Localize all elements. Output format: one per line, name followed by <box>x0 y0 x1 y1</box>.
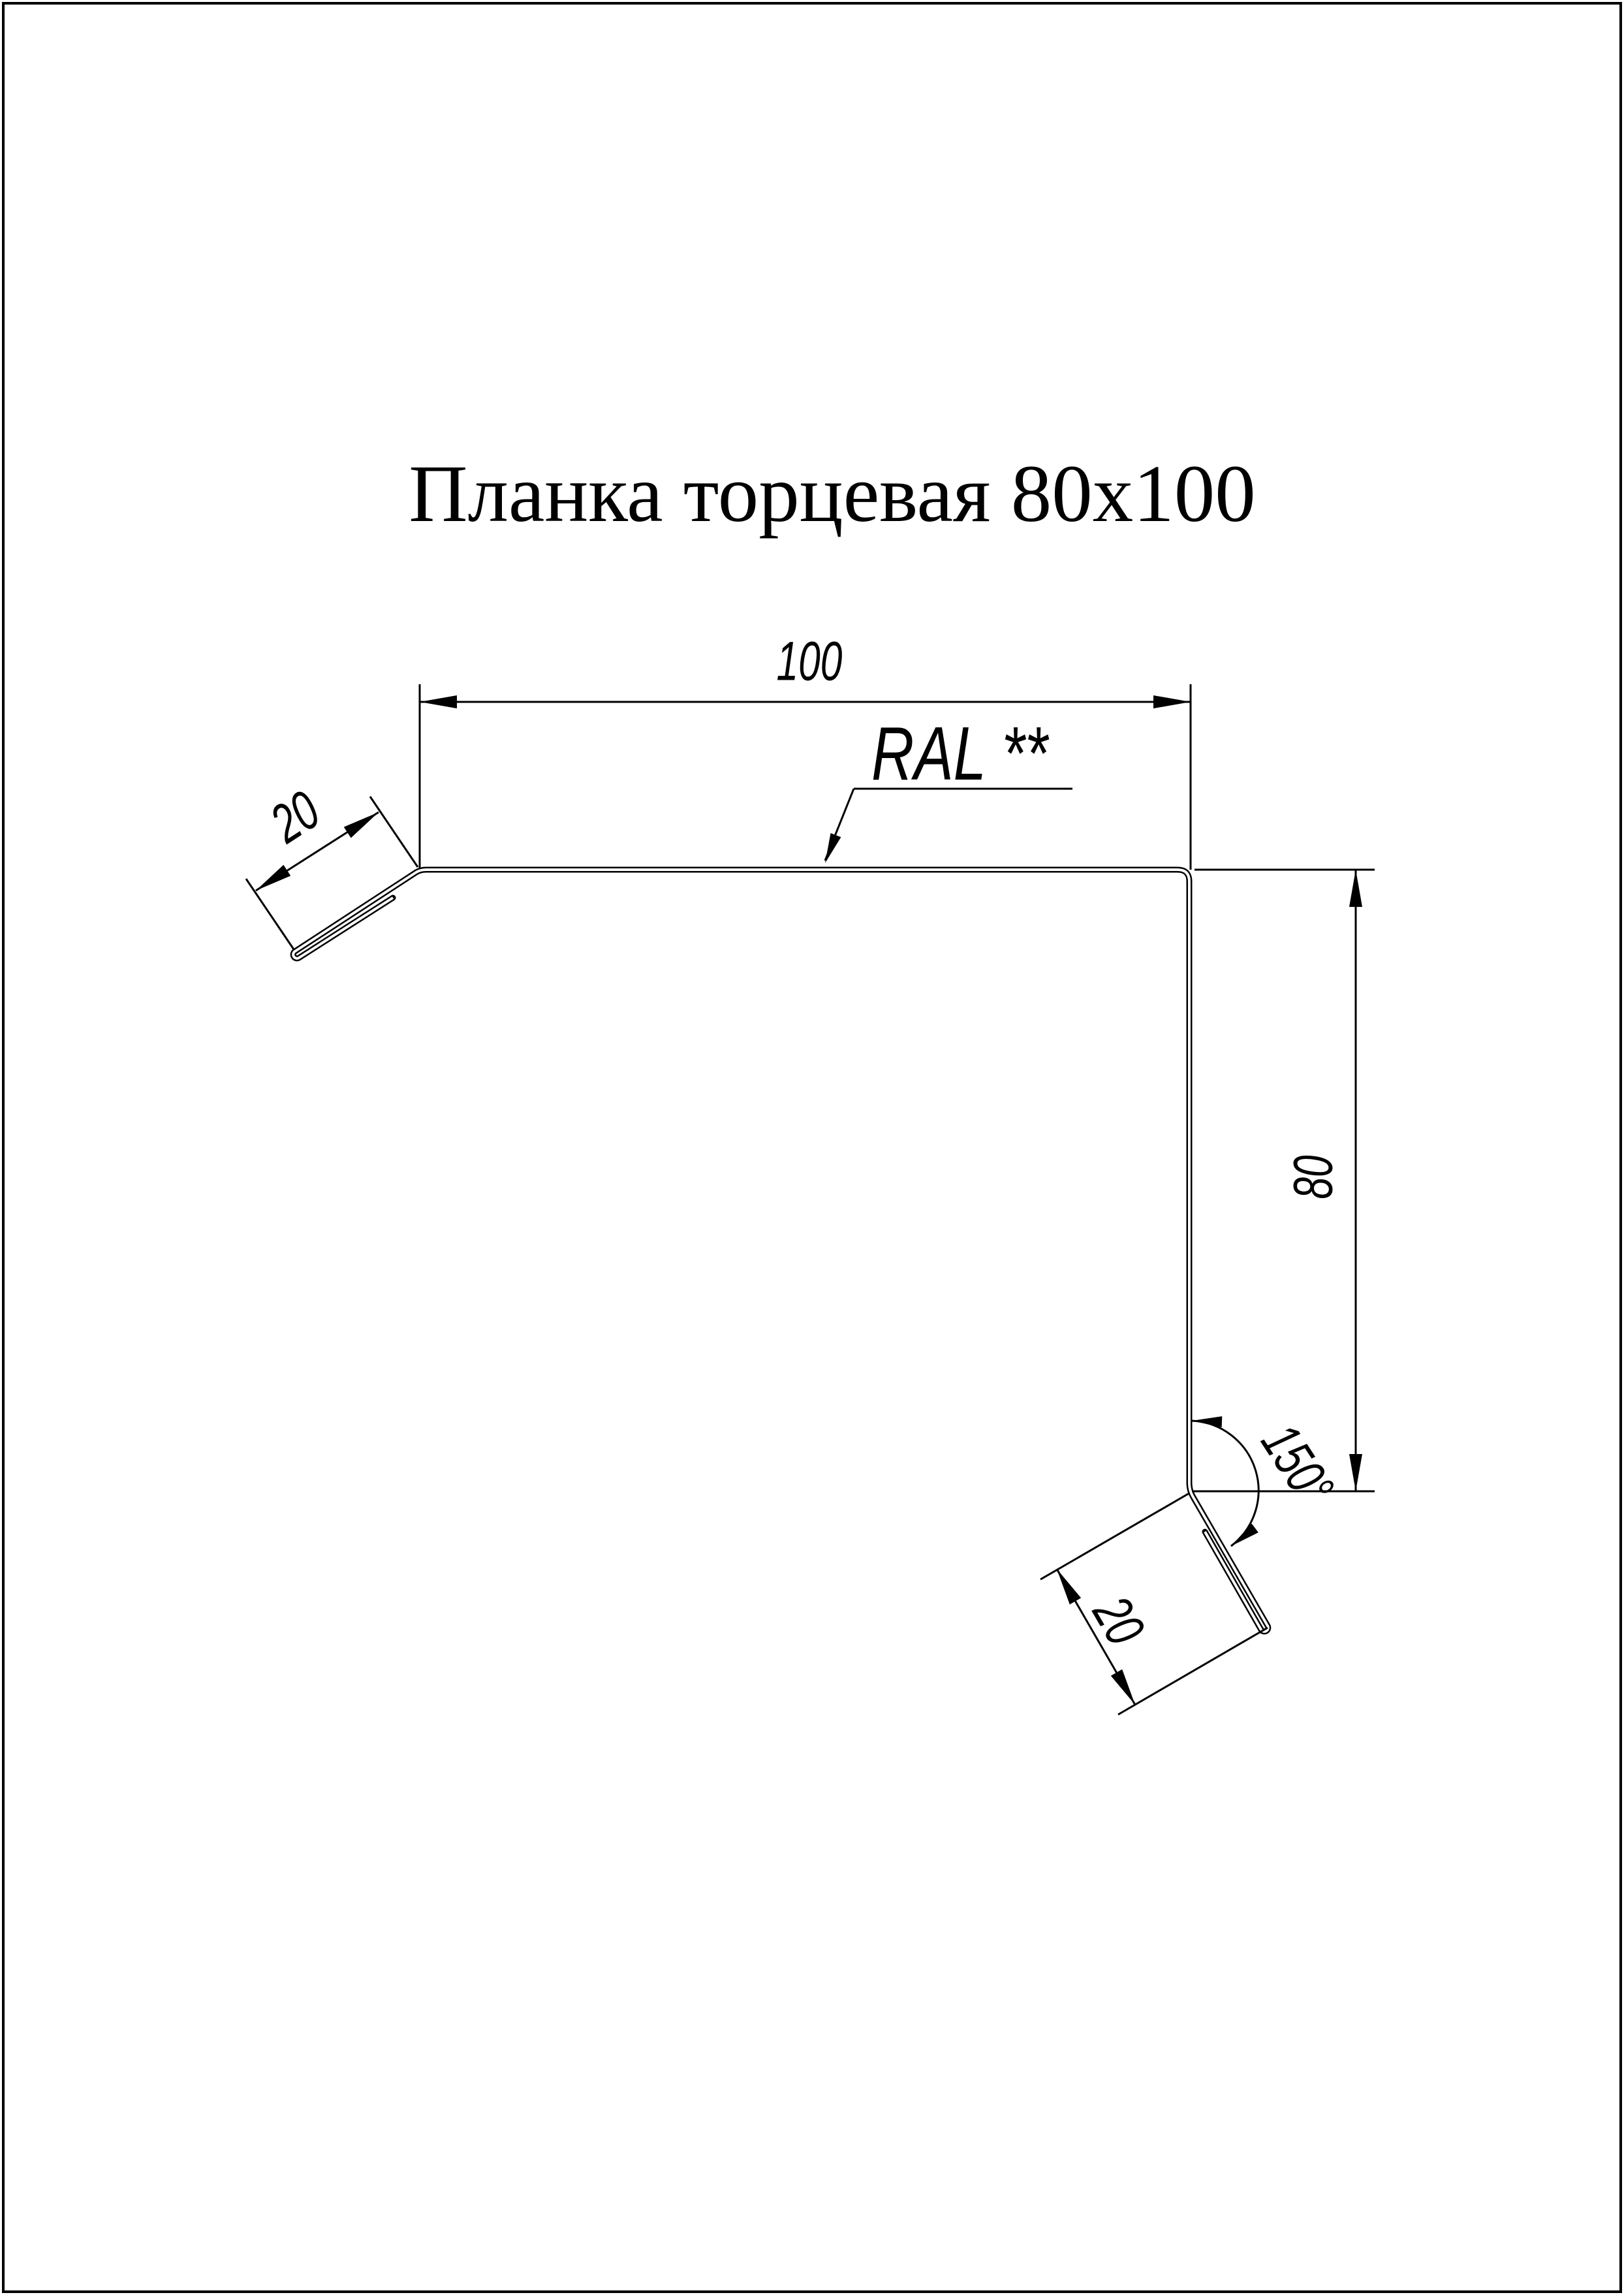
dimension-value: 20 <box>259 779 330 855</box>
angle-arrow-icon <box>1192 1416 1223 1428</box>
dimension-right-height: 80 <box>1192 870 1375 1491</box>
leader-arrow-icon <box>820 833 841 865</box>
dimension-value: 100 <box>777 631 843 692</box>
extension-line <box>246 879 294 949</box>
color-note-text: RAL ** <box>871 712 1050 796</box>
dimension-arrow-icon <box>1349 1454 1362 1491</box>
extension-line <box>370 797 418 867</box>
dimension-bottom-hem: 20 <box>1040 1493 1268 1715</box>
dimension-arrow-icon <box>253 865 291 896</box>
angle-value: 150° <box>1249 1414 1345 1515</box>
extension-line <box>1118 1628 1268 1715</box>
dimension-arrow-icon <box>344 807 383 838</box>
color-leader-note: RAL ** <box>820 712 1072 865</box>
dimension-top-width: 100 <box>420 631 1191 870</box>
profile-outline <box>293 870 1268 1632</box>
dimension-arrow-icon <box>1349 870 1362 907</box>
dimension-arrow-icon <box>1111 1670 1141 1708</box>
sheet-profile-stroke <box>293 870 1268 1632</box>
technical-drawing-canvas: 100 80 20 20 150° RAL ** <box>0 0 1624 2295</box>
dimension-arrow-icon <box>420 695 457 708</box>
dimension-value: 20 <box>1081 1586 1157 1655</box>
angle-arrow-icon <box>1228 1524 1258 1551</box>
dimension-value: 80 <box>1283 1155 1344 1199</box>
extension-line <box>1040 1493 1189 1579</box>
dimension-arrow-icon <box>1153 695 1191 708</box>
sheet-profile-core <box>293 870 1268 1632</box>
